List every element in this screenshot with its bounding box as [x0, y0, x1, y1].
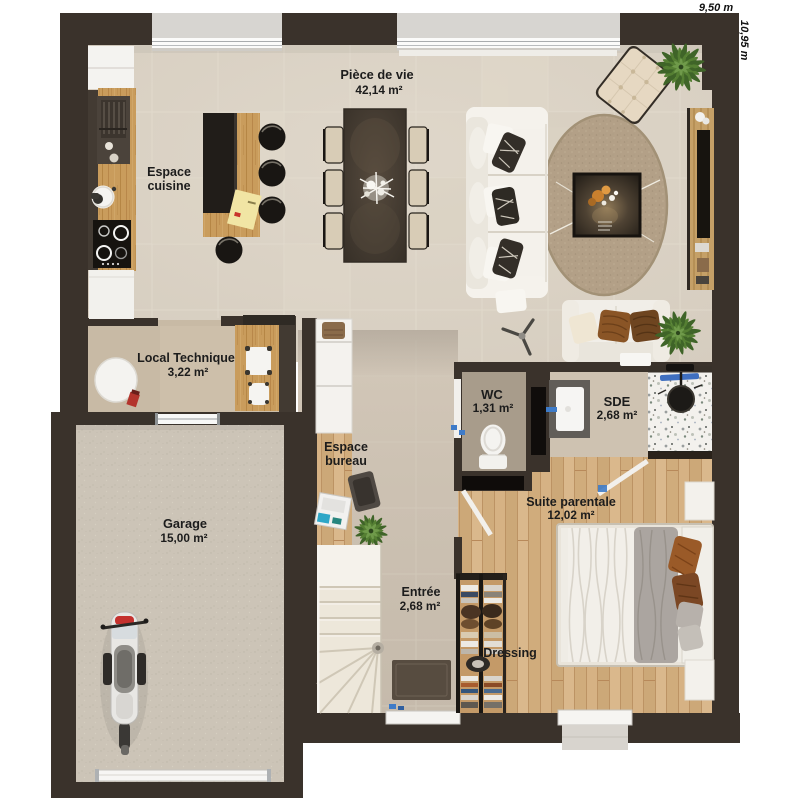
svg-text:SDE: SDE [604, 394, 631, 409]
svg-text:42,14 m²: 42,14 m² [355, 83, 402, 97]
svg-text:Espace: Espace [324, 440, 368, 454]
svg-text:Espace: Espace [147, 165, 191, 179]
svg-text:9,50 m: 9,50 m [699, 2, 733, 14]
svg-text:Garage: Garage [163, 516, 207, 531]
svg-text:3,22 m²: 3,22 m² [168, 365, 209, 379]
svg-text:2,68 m²: 2,68 m² [597, 408, 638, 422]
svg-text:Suite parentale: Suite parentale [526, 495, 616, 509]
svg-text:2,68 m²: 2,68 m² [400, 599, 441, 613]
svg-text:Entrée: Entrée [402, 585, 441, 599]
svg-text:Dressing: Dressing [483, 646, 537, 660]
svg-text:bureau: bureau [325, 454, 367, 468]
svg-text:10,95 m: 10,95 m [738, 20, 750, 61]
svg-text:cuisine: cuisine [147, 179, 190, 193]
svg-text:12,02 m²: 12,02 m² [547, 508, 594, 522]
svg-text:15,00 m²: 15,00 m² [160, 531, 207, 545]
svg-text:1,31 m²: 1,31 m² [473, 401, 514, 415]
svg-text:Local Technique: Local Technique [137, 351, 235, 365]
svg-text:WC: WC [481, 387, 503, 402]
svg-text:Pièce de vie: Pièce de vie [340, 67, 413, 82]
